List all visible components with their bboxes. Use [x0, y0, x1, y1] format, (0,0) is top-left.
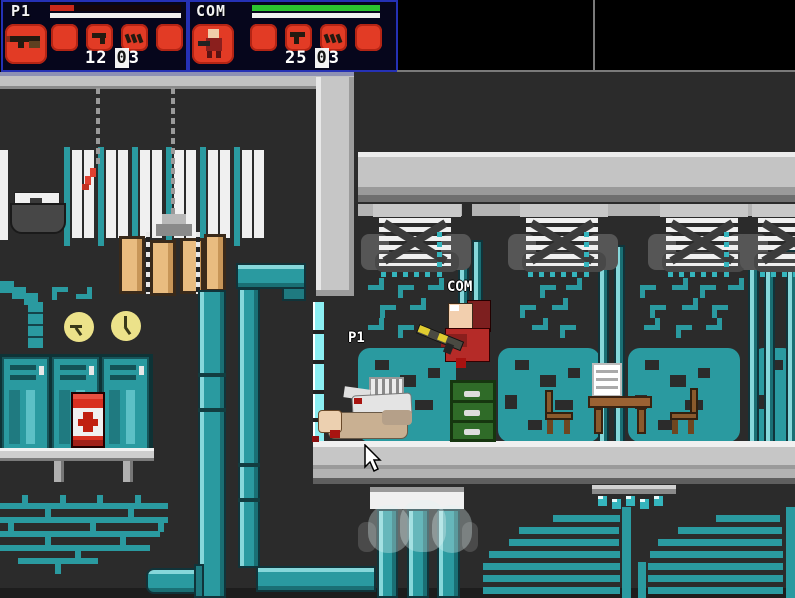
com-slot-portrait — [192, 24, 234, 64]
graffiti-shape — [676, 330, 681, 338]
barrel-symbol — [78, 419, 98, 426]
fence-plank — [242, 150, 252, 238]
chair-leg — [547, 420, 553, 434]
blood-splatter — [354, 398, 362, 404]
louver-bar — [648, 587, 783, 594]
pipe-vertical — [238, 288, 260, 568]
shelf-item-glint — [612, 499, 617, 502]
graffiti-hole — [415, 400, 433, 410]
vent-bracket — [373, 204, 461, 217]
wall-pipe — [748, 268, 759, 443]
graffiti-shape — [640, 290, 645, 298]
fence-plank — [254, 150, 264, 238]
shelf-item-glint — [626, 496, 631, 499]
fence-plank — [118, 150, 128, 238]
louver-bar — [489, 551, 620, 558]
vent-bracket — [660, 204, 748, 217]
fence-plank — [72, 150, 82, 238]
graffiti-shape — [563, 298, 568, 306]
graffiti-hole — [505, 395, 517, 409]
graffiti-shape — [439, 278, 444, 286]
floor-lower — [313, 469, 795, 478]
blood-splatter — [330, 430, 340, 438]
p1-ammo-counter: 1203 — [85, 48, 140, 68]
beam-mid — [358, 187, 795, 195]
fence-post — [64, 147, 70, 246]
locker-panel — [9, 390, 20, 444]
locker-vent — [60, 375, 86, 380]
beam-notch — [462, 204, 472, 216]
com-slot-uzi — [285, 24, 312, 51]
rifle-muzzle — [6, 36, 10, 42]
graffiti-shape — [693, 298, 698, 306]
graffiti-hole — [555, 400, 573, 410]
table-leg — [637, 408, 646, 434]
graffiti-hole — [515, 360, 529, 370]
locker-handle — [139, 366, 144, 375]
pipe-collar — [194, 564, 204, 598]
locker-panel — [109, 390, 120, 444]
chair-leg — [564, 420, 570, 434]
pipe-joint — [198, 373, 226, 377]
floor-edge — [313, 478, 795, 484]
brick-line — [0, 531, 160, 537]
chair-leg — [688, 420, 694, 434]
com-health-track — [252, 5, 380, 11]
chair-seat — [670, 412, 698, 420]
table-top — [588, 396, 652, 408]
pipe-horizontal — [236, 263, 306, 289]
graffiti-shape — [398, 290, 403, 298]
cabinet-line — [452, 400, 494, 403]
vent-dots — [668, 272, 722, 277]
p1-slot-ammo — [121, 24, 148, 51]
locker-panel — [59, 390, 70, 444]
graffiti-shape — [560, 330, 565, 338]
pulley — [156, 224, 192, 236]
com-slot-empty-1 — [250, 24, 277, 51]
uzi-grip — [294, 36, 299, 44]
hud-divider — [593, 0, 595, 71]
graffiti-hole — [540, 375, 556, 387]
hook — [82, 184, 89, 190]
mouse-cursor — [363, 444, 385, 474]
graffiti-shape — [379, 318, 384, 326]
rifle-mag — [18, 41, 24, 48]
shelf-item-glint — [654, 496, 659, 499]
graffiti-hole — [670, 375, 686, 387]
locker-handle — [89, 366, 94, 375]
hud-bar: P1 1203 — [0, 0, 795, 72]
com-slot-ammo — [320, 24, 347, 51]
pipe-branch — [146, 568, 200, 594]
shelf-item-glint — [598, 496, 603, 499]
p1-name: P1 — [11, 2, 31, 20]
fighter-portrait-leg — [207, 51, 212, 58]
p1-health-track — [50, 5, 181, 11]
locker-vent — [60, 365, 86, 370]
barrel-rim — [73, 394, 103, 399]
graffiti-hole — [568, 368, 580, 378]
vent-dots — [528, 272, 582, 277]
louver-bar — [648, 563, 783, 570]
graffiti-shape — [683, 278, 688, 286]
cabinet-handle — [464, 429, 480, 435]
louver-bar — [678, 527, 782, 534]
locker-panel — [26, 390, 35, 444]
vent-bracket — [520, 204, 608, 217]
floor — [313, 447, 795, 465]
pipe-branch — [256, 566, 376, 592]
crate-chain — [146, 232, 150, 294]
brick-line — [0, 503, 168, 509]
p1-legs-lower — [382, 410, 412, 425]
pipe-vertical — [198, 290, 226, 598]
locker-handle — [39, 366, 44, 375]
locker-vent — [110, 375, 136, 380]
louver-post — [622, 507, 631, 598]
paper-line — [596, 370, 618, 373]
fence-plank — [220, 150, 230, 238]
graffiti-hole — [698, 368, 710, 378]
louver-bar — [648, 575, 783, 582]
fence-plank — [106, 150, 116, 238]
louver-post — [638, 562, 646, 598]
graffiti-shape — [87, 287, 92, 295]
graffiti-shape — [700, 290, 705, 298]
graffiti-hole — [528, 420, 542, 430]
game-scene[interactable] — [0, 72, 795, 598]
pipe-column — [28, 302, 43, 348]
com-name: COM — [196, 2, 226, 20]
platform-leg — [123, 461, 133, 482]
graffiti-shape — [717, 318, 722, 326]
p1-health-fill — [50, 5, 74, 11]
louver-bar — [509, 539, 619, 546]
chair-seat — [545, 412, 573, 420]
cabinet-handle — [464, 391, 480, 397]
paper-line — [596, 378, 618, 381]
graffiti-shape — [739, 278, 744, 286]
graffiti-shape — [52, 292, 57, 300]
louver-bar — [483, 575, 620, 582]
vent-dots — [381, 272, 435, 277]
barrel-bottom — [73, 440, 103, 446]
crate-plank — [150, 240, 176, 296]
p1-character-down — [312, 386, 414, 444]
beam-dark — [358, 195, 795, 202]
p1-slot-empty-2 — [156, 24, 183, 51]
graffiti-shape — [543, 318, 548, 326]
chain — [96, 88, 100, 168]
pipe-elbow — [282, 287, 306, 301]
vent-dots — [437, 232, 442, 278]
pot-body — [10, 203, 66, 234]
com-health-fill — [252, 5, 380, 11]
fence-plank — [84, 150, 94, 238]
locker-panel — [126, 390, 135, 444]
fighter-portrait-leg — [216, 51, 221, 58]
louver-bar — [650, 551, 783, 558]
louver-bar — [483, 563, 620, 570]
pipe-joint — [238, 463, 260, 467]
pulley — [162, 214, 186, 224]
louver-bar — [553, 515, 620, 522]
light-tube-gap — [313, 330, 324, 334]
locker-vent — [10, 365, 36, 370]
graffiti-hole — [645, 360, 659, 370]
wall-pipe — [614, 245, 625, 443]
brick-line — [55, 564, 61, 574]
vent-dots — [760, 272, 795, 277]
wall-pipe — [764, 268, 775, 443]
chair-leg — [672, 420, 678, 434]
fighter-portrait-gun — [198, 41, 210, 46]
brick-line — [0, 517, 168, 523]
fence-plank — [208, 150, 218, 238]
table-leg — [594, 408, 603, 434]
com-stamina-bar — [252, 13, 380, 18]
com-world-label: COM — [447, 279, 472, 295]
graffiti-shape — [520, 310, 525, 318]
wall-pipe — [786, 250, 795, 443]
p1-world-label: P1 — [348, 330, 365, 346]
ceiling-bar — [0, 76, 354, 86]
cabinet-handle — [464, 410, 480, 416]
blood-splatter — [312, 436, 319, 442]
shelf — [592, 489, 676, 494]
pipe-joint — [198, 408, 226, 412]
blood-splatter — [456, 358, 466, 368]
vent-dots — [584, 232, 589, 278]
steam-cloud — [432, 505, 472, 553]
graffiti-shape — [712, 310, 717, 318]
crate-plank — [119, 236, 145, 294]
com-head-glint — [450, 305, 459, 311]
fence-plank — [140, 150, 150, 238]
crate-chain — [196, 232, 200, 294]
louver-bar — [519, 527, 619, 534]
graffiti-shape — [379, 278, 384, 286]
fence-post — [234, 147, 240, 246]
game-viewport[interactable]: P1 1203 — [0, 0, 795, 598]
shelf-item-glint — [640, 499, 645, 502]
crate-plank — [204, 234, 226, 292]
graffiti-shape — [577, 278, 582, 286]
pillar-base — [316, 290, 354, 296]
paper-line — [596, 386, 618, 389]
pipe-joint — [238, 498, 260, 502]
graffiti-shape — [655, 318, 660, 326]
louver-post — [786, 507, 795, 598]
louver-bar — [483, 587, 620, 594]
graffiti-shape — [398, 330, 403, 338]
p1-slot-pistol — [86, 24, 113, 51]
graffiti-shape — [380, 310, 385, 318]
com-ammo-counter: 2503 — [285, 48, 340, 68]
p1-slot-empty-1 — [51, 24, 78, 51]
vent-bracket — [752, 204, 795, 217]
louver-bar — [716, 515, 780, 522]
graffiti-shape — [540, 290, 545, 298]
platform-leg — [54, 461, 64, 482]
light-tube-gap — [313, 360, 324, 364]
louver-bar — [658, 539, 782, 546]
com-character — [414, 296, 500, 376]
graffiti-shape — [650, 310, 655, 318]
pillar — [316, 77, 354, 295]
com-slot-empty-2 — [355, 24, 382, 51]
locker-vent — [110, 365, 136, 370]
crate-plank — [180, 238, 204, 294]
fence-plank — [0, 150, 8, 240]
fence-post — [132, 147, 138, 246]
hud-panel-com: COM 2503 — [188, 0, 398, 72]
graffiti-hole — [375, 360, 389, 370]
graffiti-hole — [658, 420, 672, 430]
chain — [171, 88, 175, 216]
p1-slot-rifle — [5, 24, 47, 64]
vent-dots — [724, 232, 729, 278]
beam — [358, 157, 795, 187]
cabinet-line — [452, 420, 494, 423]
fence-post — [200, 147, 206, 246]
pistol-grip — [100, 37, 105, 44]
ceiling-edge — [0, 86, 354, 89]
p1-stamina-bar — [50, 13, 181, 18]
locker-vent — [10, 375, 36, 380]
rifle-stock — [29, 41, 40, 48]
hud-panel-p1: P1 1203 — [1, 0, 188, 72]
